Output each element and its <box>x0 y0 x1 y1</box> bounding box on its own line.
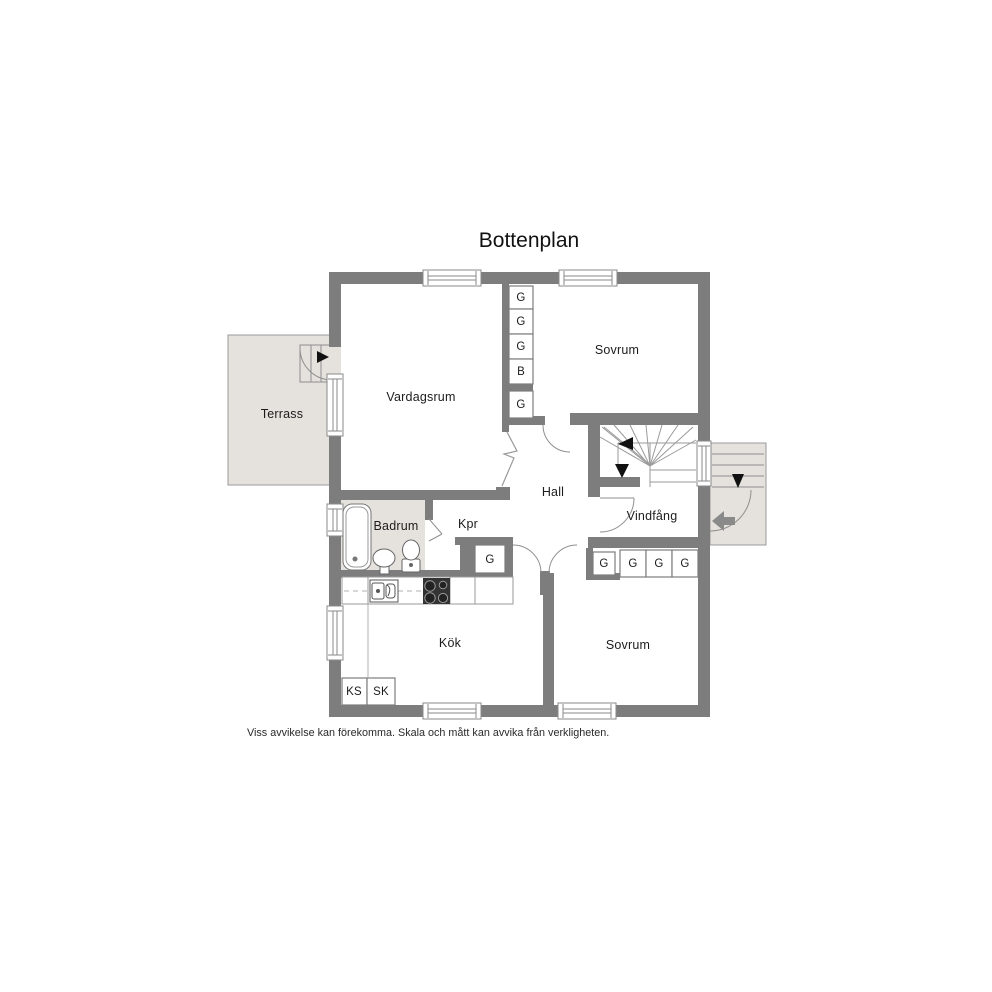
room-label-kpr: Kpr <box>458 517 478 531</box>
room-label-vindfang: Vindfång <box>627 509 678 523</box>
stairs-up-arrow-icon <box>618 437 633 450</box>
terrace-door-opening <box>329 347 341 375</box>
closet-label: G <box>680 558 689 570</box>
window-icon <box>327 374 343 436</box>
closet-label: G <box>516 316 525 328</box>
room-label-terrass: Terrass <box>261 407 303 421</box>
closet-label: G <box>516 341 525 353</box>
room-label-badrum: Badrum <box>374 519 419 533</box>
stairs-down-arrow-icon <box>615 464 629 478</box>
door-arc <box>513 545 541 573</box>
cabinet-label-sk: SK <box>373 686 389 698</box>
room-label-hall: Hall <box>542 485 564 499</box>
door-leaf <box>429 519 442 541</box>
room-label-vardagsrum: Vardagsrum <box>386 390 455 404</box>
closet-label: G <box>628 558 637 570</box>
closet-label: G <box>516 292 525 304</box>
wall-opening-break <box>502 432 517 486</box>
bathtub-icon <box>343 504 371 570</box>
cabinet-label-ks: KS <box>346 686 362 698</box>
room-label-sovrum-bottom: Sovrum <box>606 638 650 652</box>
closet-label: G <box>516 399 525 411</box>
door-arc <box>549 545 577 573</box>
closet-label: G <box>599 558 608 570</box>
window-icon <box>327 606 343 660</box>
entry-steps-floor <box>710 443 766 545</box>
closet-label: G <box>485 554 494 566</box>
door-arc <box>543 425 570 452</box>
disclaimer-text: Viss avvikelse kan förekomma. Skala och … <box>247 727 609 739</box>
closet-label: G <box>654 558 663 570</box>
window-icon <box>558 703 616 719</box>
floor-plan-drawing <box>0 0 992 992</box>
window-icon <box>423 270 481 286</box>
floor-plan-page: Bottenplan <box>0 0 992 992</box>
room-label-sovrum-top: Sovrum <box>595 343 639 357</box>
front-door-icon <box>697 441 711 486</box>
stove-icon <box>423 578 450 604</box>
window-icon <box>423 703 481 719</box>
toilet-icon <box>402 540 420 572</box>
kitchen-sink-icon <box>370 580 398 602</box>
closet-label: B <box>517 366 525 378</box>
window-icon <box>559 270 617 286</box>
window-icon <box>327 504 343 536</box>
room-label-kok: Kök <box>439 636 461 650</box>
